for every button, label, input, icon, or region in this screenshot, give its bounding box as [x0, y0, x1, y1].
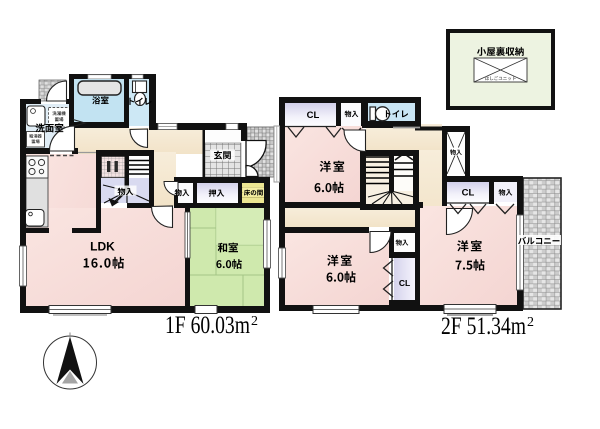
svg-text:2: 2	[527, 315, 534, 330]
svg-text:CL: CL	[462, 188, 475, 199]
svg-text:LDK: LDK	[90, 240, 115, 254]
svg-text:2F 51.34m: 2F 51.34m	[441, 313, 526, 340]
svg-text:CL: CL	[399, 278, 410, 288]
svg-text:2: 2	[251, 314, 258, 329]
svg-text:1F 60.03m: 1F 60.03m	[165, 312, 250, 339]
svg-text:CL: CL	[307, 110, 320, 121]
